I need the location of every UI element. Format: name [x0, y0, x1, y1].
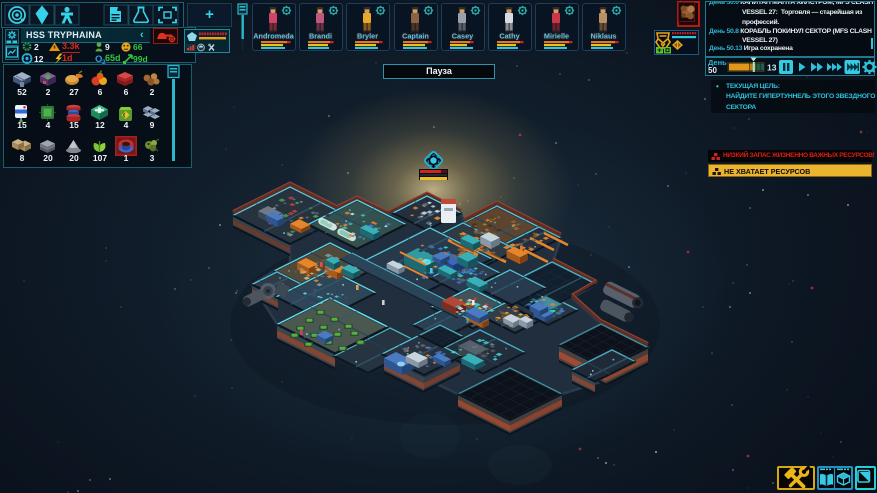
- svg-text:6: 6: [124, 87, 129, 97]
- svg-text:15: 15: [17, 120, 27, 130]
- svg-text:Captain: Captain: [402, 32, 429, 41]
- svg-text:3: 3: [150, 153, 155, 163]
- svg-text:9: 9: [150, 120, 155, 130]
- svg-text:6: 6: [98, 87, 103, 97]
- svg-text:15: 15: [69, 120, 79, 130]
- svg-text:8: 8: [20, 153, 25, 163]
- svg-text:4: 4: [46, 120, 51, 130]
- svg-text:Brandi: Brandi: [309, 32, 332, 41]
- svg-text:52: 52: [17, 87, 27, 97]
- svg-text:107: 107: [93, 153, 107, 163]
- svg-text:27: 27: [69, 87, 79, 97]
- svg-text:12: 12: [95, 120, 105, 130]
- svg-text:Casey: Casey: [452, 32, 474, 41]
- svg-text:1: 1: [124, 153, 129, 163]
- svg-text:Andromeda: Andromeda: [253, 32, 294, 41]
- svg-text:Niklaus: Niklaus: [591, 32, 617, 41]
- svg-text:Cathy: Cathy: [499, 32, 520, 41]
- svg-text:4: 4: [124, 120, 129, 130]
- svg-text:Mirielle: Mirielle: [544, 32, 569, 41]
- svg-text:20: 20: [43, 153, 53, 163]
- svg-text:13: 13: [767, 63, 777, 73]
- svg-text:2: 2: [150, 87, 155, 97]
- svg-text:Bryler: Bryler: [357, 32, 378, 41]
- svg-text:20: 20: [69, 153, 79, 163]
- svg-text:2: 2: [46, 87, 51, 97]
